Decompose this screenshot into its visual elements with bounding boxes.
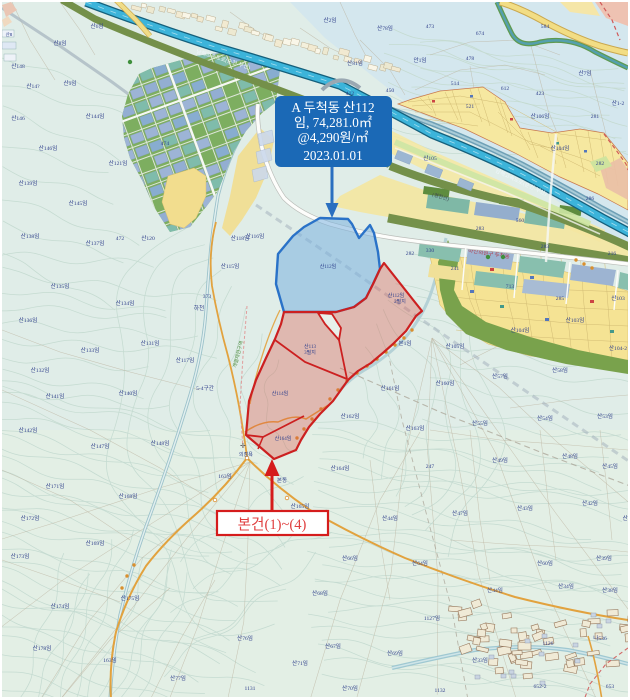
svg-text:216: 216 [608,251,617,257]
svg-text:산135임: 산135임 [51,282,70,290]
svg-text:산8임: 산8임 [53,39,66,47]
svg-text:713: 713 [506,284,515,290]
svg-text:1126: 1126 [543,641,554,647]
svg-text:✛: ✛ [240,442,246,450]
svg-text:산132임: 산132임 [31,366,50,374]
svg-text:산70임: 산70임 [342,684,358,692]
svg-text:산139임: 산139임 [19,179,38,187]
svg-text:산117임: 산117임 [176,356,194,364]
svg-text:산1-2: 산1-2 [612,99,625,107]
svg-text:산45임: 산45임 [602,462,618,470]
svg-text:산106임: 산106임 [531,112,550,120]
svg-text:산112임: 산112임 [320,263,337,270]
svg-text:산141임: 산141임 [46,392,65,400]
svg-text:163임: 163임 [103,656,117,664]
svg-text:산44임: 산44임 [487,586,503,594]
svg-text:산104임: 산104임 [551,144,570,152]
svg-text:산105: 산105 [423,154,437,162]
svg-text:산174임: 산174임 [51,602,70,610]
svg-text:산118임: 산118임 [231,234,249,242]
svg-text:산164임: 산164임 [275,435,292,442]
svg-text:286: 286 [586,196,595,202]
svg-text:산168임: 산168임 [119,492,138,500]
svg-text:산43임: 산43임 [517,504,533,512]
svg-text:514: 514 [451,81,460,87]
svg-text:1132: 1132 [435,688,446,694]
svg-text:산134임: 산134임 [116,299,135,307]
svg-text:247: 247 [426,464,435,470]
svg-text:285: 285 [556,296,565,302]
svg-text:241: 241 [451,266,460,272]
svg-text:산146: 산146 [11,114,25,122]
svg-text:282: 282 [596,161,605,167]
svg-text:산44임: 산44임 [382,514,398,522]
svg-text:산49임: 산49임 [492,456,508,464]
svg-text:산145임: 산145임 [69,199,88,207]
svg-text:산7임: 산7임 [578,69,591,77]
svg-text:산6임: 산6임 [90,22,103,30]
svg-text:나536: 나536 [593,634,607,642]
svg-text:산161임: 산161임 [381,384,400,392]
svg-text:산173임: 산173임 [11,552,30,560]
svg-text:478: 478 [466,56,475,62]
svg-text:560: 560 [516,218,525,224]
svg-text:A 두척동 산112: A 두척동 산112 [291,100,374,115]
svg-text:1131: 1131 [245,686,256,692]
svg-text:산67임: 산67임 [325,642,341,650]
svg-text:산33임: 산33임 [472,656,488,664]
svg-text:산81임: 산81임 [347,59,363,67]
svg-text:1127임: 1127임 [424,614,440,622]
svg-text:산144임: 산144임 [86,112,105,120]
svg-text:산57임: 산57임 [492,372,508,380]
svg-text:산78임: 산78임 [377,24,393,32]
svg-text:산148임: 산148임 [151,439,170,447]
svg-text:산133임: 산133임 [81,346,100,354]
svg-text:산38임: 산38임 [602,586,618,594]
svg-text:본1임: 본1임 [398,339,411,347]
svg-text:산162임: 산162임 [341,412,360,420]
svg-text:산103: 산103 [611,294,625,302]
svg-text:산160임: 산160임 [436,379,455,387]
svg-text:산64임: 산64임 [412,559,428,567]
svg-text:산1133필지: 산1133필지 [304,343,316,356]
svg-text:산175임: 산175임 [121,594,140,602]
svg-text:283: 283 [476,226,485,232]
svg-text:산169임: 산169임 [86,539,105,547]
svg-text:산142임: 산142임 [19,426,38,434]
svg-text:산66임: 산66임 [342,554,358,562]
svg-text:산34임: 산34임 [558,582,574,590]
svg-text:521: 521 [466,104,475,110]
svg-text:산71임: 산71임 [292,659,308,667]
svg-text:산76임: 산76임 [237,634,253,642]
svg-text:산8: 산8 [6,31,13,37]
svg-text:산69임: 산69임 [387,649,403,657]
svg-text:산9임: 산9임 [63,79,76,87]
svg-text:본동: 본동 [277,477,287,484]
svg-text:674: 674 [476,31,485,37]
svg-text:산171임: 산171임 [46,482,65,490]
svg-text:653: 653 [606,684,615,690]
svg-text:산140임: 산140임 [119,389,138,397]
svg-text:산55임: 산55임 [472,419,488,427]
svg-text:산165임: 산165임 [291,502,310,510]
svg-text:산147임: 산147임 [91,442,110,450]
svg-text:산54임: 산54임 [537,414,553,422]
svg-text:산121임: 산121임 [109,159,128,167]
svg-text:330: 330 [426,248,435,254]
svg-text:281: 281 [591,114,600,120]
svg-text:산136임: 산136임 [19,316,38,324]
svg-text:산39임: 산39임 [596,554,612,562]
svg-text:산103임: 산103임 [566,316,585,324]
svg-text:안1임: 안1임 [413,56,426,64]
svg-text:산114임: 산114임 [272,390,289,397]
svg-text:산120: 산120 [141,234,155,242]
svg-text:하천: 하천 [194,304,204,312]
svg-text:163임: 163임 [218,472,232,480]
svg-text:산104임: 산104임 [511,326,530,334]
svg-text:2023.01.01: 2023.01.01 [303,148,362,163]
svg-text:산148: 산148 [11,62,25,70]
svg-text:임, 74,281.0㎡: 임, 74,281.0㎡ [294,115,372,130]
svg-text:652-2: 652-2 [533,684,546,690]
svg-text:산138임: 산138임 [21,232,40,240]
svg-text:5-4구간: 5-4구간 [196,384,214,392]
svg-text:산146임: 산146임 [39,144,58,152]
svg-text:423: 423 [536,91,545,97]
svg-text:산163임: 산163임 [406,424,425,432]
svg-text:산68임: 산68임 [312,589,328,597]
svg-text:본건(1)~(4): 본건(1)~(4) [238,516,307,533]
svg-text:612: 612 [501,86,510,92]
svg-text:산42임: 산42임 [582,499,598,507]
svg-text:474: 474 [161,141,170,147]
svg-text:산47임: 산47임 [452,509,468,517]
svg-text:450: 450 [386,88,395,94]
svg-text:472: 472 [116,236,125,242]
svg-text:산58임: 산58임 [552,366,568,374]
svg-text:산172임: 산172임 [21,514,40,522]
svg-text:473: 473 [426,24,435,30]
svg-text:산53임: 산53임 [597,412,613,420]
svg-text:@4,290원/㎡: @4,290원/㎡ [298,130,369,145]
svg-text:산48임: 산48임 [562,452,578,460]
svg-text:산131임: 산131임 [141,339,160,347]
svg-text:산178임: 산178임 [33,644,52,652]
svg-text:산105임: 산105임 [446,342,465,350]
svg-text:산14?: 산14? [26,82,40,90]
svg-text:산104-2: 산104-2 [609,344,627,352]
svg-text:283: 283 [541,244,550,250]
svg-text:584: 584 [541,24,550,30]
svg-text:산60임: 산60임 [537,559,553,567]
svg-text:의점욕: 의점욕 [239,451,253,458]
svg-text:산2임: 산2임 [323,16,336,24]
svg-text:산115임: 산115임 [221,262,239,270]
svg-text:282: 282 [406,251,415,257]
svg-text:산164임: 산164임 [331,464,350,472]
svg-text:산77임: 산77임 [170,674,186,682]
svg-text:373: 373 [203,294,212,300]
svg-text:산137임: 산137임 [86,239,105,247]
